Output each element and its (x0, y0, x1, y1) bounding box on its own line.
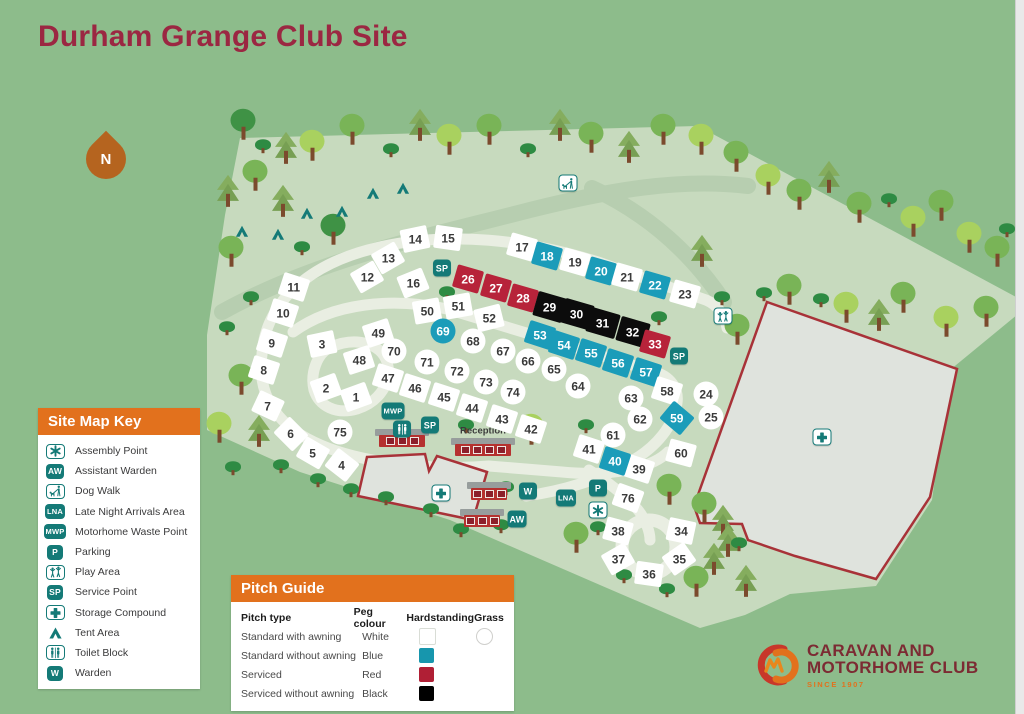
pitch-number: 29 (543, 300, 556, 314)
key-item-toilet: Toilet Block (44, 643, 194, 663)
pitch-number: 69 (436, 324, 449, 338)
pitch-number: 63 (624, 391, 637, 405)
pitch-66: 66 (516, 349, 541, 374)
building (471, 488, 507, 500)
key-item-label: Play Area (75, 566, 120, 578)
key-item-label: Toilet Block (75, 647, 128, 659)
pitch-68: 68 (461, 329, 486, 354)
hardstanding-swatch-cell (419, 686, 476, 701)
key-item-label: Service Point (75, 586, 137, 598)
storage-icon (813, 429, 832, 446)
pitch-number: 26 (461, 272, 474, 286)
pitch-number: 62 (633, 412, 646, 426)
peg-colour-label: Black (362, 688, 419, 700)
assembly-icon (46, 444, 65, 459)
pitch-number: 8 (261, 363, 268, 377)
pitch-number: 40 (608, 454, 621, 468)
pitch-number: 9 (269, 336, 276, 350)
pitch-number: 27 (489, 281, 502, 295)
pitch-number: 39 (632, 462, 645, 476)
hardstanding-swatch (419, 648, 434, 663)
pitch-69: 69 (431, 319, 456, 344)
key-icon-cell: AW (44, 464, 66, 479)
pitch-guide-column-header: Pitch type (241, 612, 354, 624)
pitch-71: 71 (415, 350, 440, 375)
key-icon-cell (44, 484, 66, 499)
tent-icon (236, 224, 249, 242)
pitch-number: 70 (387, 344, 400, 358)
key-item-label: Late Night Arrivals Area (75, 506, 185, 518)
key-item-list: Assembly PointAWAssistant WardenDog Walk… (38, 435, 200, 689)
peg-colour-label: White (362, 631, 419, 643)
key-item-lna: LNALate Night Arrivals Area (44, 502, 194, 522)
key-panel-title: Site Map Key (38, 408, 200, 435)
pitch-36: 36 (634, 561, 664, 588)
pitch-number: 34 (674, 524, 687, 538)
pitch-number: 25 (704, 410, 717, 424)
pitch-number: 52 (482, 311, 495, 325)
pitch-24: 24 (694, 382, 719, 407)
building (464, 515, 500, 527)
pitch-type-label: Serviced (241, 669, 362, 681)
key-icon-cell (44, 565, 66, 580)
pitch-75: 75 (328, 420, 353, 445)
pitch-73: 73 (474, 370, 499, 395)
key-item-storage: Storage Compound (44, 603, 194, 623)
key-item-label: Parking (75, 546, 111, 558)
pitch-number: 28 (516, 291, 529, 305)
pitch-number: 60 (674, 446, 687, 460)
assembly-icon (589, 502, 608, 519)
key-icon-cell: SP (44, 585, 66, 600)
pitch-number: 19 (568, 255, 581, 269)
pitch-number: 49 (371, 326, 384, 340)
grass-swatch (476, 628, 493, 645)
pitch-number: 36 (642, 567, 655, 581)
storage-icon (432, 485, 451, 502)
pitch-74: 74 (501, 380, 526, 405)
dogwalk-icon (46, 484, 65, 499)
sp-icon: SP (670, 348, 688, 365)
pitch-type-label: Standard with awning (241, 631, 362, 643)
pitch-guide-row: Standard with awningWhite (241, 627, 504, 646)
pitch-guide-column-header: Grass (474, 612, 504, 624)
pitch-63: 63 (619, 386, 644, 411)
pitch-number: 74 (506, 385, 519, 399)
tent-icon (336, 204, 349, 222)
pitch-number: 61 (606, 428, 619, 442)
pitch-number: 31 (596, 316, 609, 330)
pitch-type-label: Standard without awning (241, 650, 362, 662)
pitch-guide-row: Serviced without awningBlack (241, 684, 504, 703)
pitch-15: 15 (433, 225, 463, 252)
tent-icon (301, 206, 314, 224)
hardstanding-swatch (419, 628, 436, 645)
key-icon-cell: MWP (44, 524, 66, 539)
pitch-number: 48 (352, 353, 365, 367)
pitch-number: 5 (310, 446, 317, 460)
p-icon: P (589, 480, 607, 497)
peg-colour-label: Blue (362, 650, 419, 662)
key-item-p: PParking (44, 542, 194, 562)
key-item-mwp: MWPMotorhome Waste Point (44, 522, 194, 542)
building (455, 444, 511, 456)
aw-icon: AW (46, 464, 64, 479)
pitch-number: 4 (339, 458, 346, 472)
key-item-tent: Tent Area (44, 623, 194, 643)
pitch-number: 33 (648, 337, 661, 351)
tent-icon (47, 625, 64, 640)
pitch-number: 53 (533, 328, 546, 342)
page-title: Durham Grange Club Site (38, 20, 408, 54)
storage-icon (46, 605, 65, 620)
site-map-key-panel: Site Map Key Assembly PointAWAssistant W… (38, 408, 200, 689)
key-item-w: WWarden (44, 663, 194, 683)
key-item-play: Play Area (44, 562, 194, 582)
hardstanding-swatch (419, 686, 434, 701)
pitch-guide-row: Standard without awningBlue (241, 646, 504, 665)
mwp-icon: MWP (382, 403, 405, 420)
pitch-number: 67 (496, 344, 509, 358)
pitch-guide-title: Pitch Guide (231, 575, 514, 602)
club-logo-icon (751, 640, 799, 690)
pitch-number: 76 (621, 491, 634, 505)
pitch-number: 10 (276, 306, 289, 320)
pitch-65: 65 (542, 357, 567, 382)
pitch-number: 72 (450, 364, 463, 378)
pitch-guide-table: Pitch typePeg colourHardstandingGrassSta… (231, 602, 514, 711)
pitch-61: 61 (601, 423, 626, 448)
key-icon-cell (44, 625, 66, 640)
peg-colour-label: Red (362, 669, 419, 681)
mwp-icon: MWP (44, 524, 66, 539)
pitch-number: 59 (670, 411, 683, 425)
pitch-guide-header-row: Pitch typePeg colourHardstandingGrass (241, 608, 504, 627)
play-icon (46, 565, 65, 580)
hardstanding-swatch-cell (419, 667, 476, 682)
tent-icon (272, 227, 285, 245)
key-item-label: Assistant Warden (75, 465, 157, 477)
pitch-number: 32 (626, 325, 639, 339)
pitch-number: 45 (437, 390, 450, 404)
pitch-guide-panel: Pitch Guide Pitch typePeg colourHardstan… (231, 575, 514, 711)
key-icon-cell (44, 605, 66, 620)
p-icon: P (47, 545, 63, 560)
pitch-number: 21 (620, 270, 633, 284)
pitch-72: 72 (445, 359, 470, 384)
pitch-type-label: Serviced without awning (241, 688, 362, 700)
pitch-70: 70 (382, 339, 407, 364)
pitch-number: 47 (381, 371, 394, 385)
site-map-page: Durham Grange Club Site N Reception12345… (0, 0, 1024, 714)
aw-icon: AW (508, 511, 527, 528)
key-item-label: Tent Area (75, 627, 119, 639)
w-icon: W (47, 666, 63, 681)
key-item-label: Warden (75, 667, 111, 679)
pitch-number: 11 (288, 280, 301, 294)
pitch-number: 41 (582, 442, 595, 456)
pitch-number: 13 (381, 251, 394, 265)
key-icon-cell: P (44, 545, 66, 560)
pitch-number: 71 (420, 355, 433, 369)
toilet-icon (46, 645, 65, 660)
pitch-67: 67 (491, 339, 516, 364)
pitch-number: 46 (408, 381, 421, 395)
hardstanding-swatch (419, 667, 434, 682)
sp-icon: SP (421, 417, 439, 434)
pitch-number: 15 (441, 231, 454, 245)
pitch-number: 24 (699, 387, 712, 401)
pitch-number: 12 (360, 270, 373, 284)
pitch-number: 16 (406, 276, 419, 290)
pitch-number: 44 (465, 401, 478, 415)
hardstanding-swatch-cell (419, 628, 476, 645)
key-item-label: Dog Walk (75, 485, 120, 497)
pitch-number: 54 (557, 338, 570, 352)
pitch-number: 64 (571, 379, 584, 393)
pitch-number: 14 (408, 232, 421, 246)
w-icon: W (519, 483, 537, 500)
key-item-label: Storage Compound (75, 607, 166, 619)
pitch-number: 22 (648, 278, 661, 292)
logo-line2: MOTORHOME CLUB (807, 659, 979, 676)
pitch-number: 68 (466, 334, 479, 348)
pitch-guide-column-header: Hardstanding (406, 612, 474, 624)
pitch-number: 73 (479, 375, 492, 389)
pitch-number: 66 (521, 354, 534, 368)
logo-tagline: SINCE 1907 (807, 680, 979, 689)
north-marker: N (86, 133, 130, 177)
key-icon-cell (44, 444, 66, 459)
pitch-number: 38 (611, 524, 624, 538)
key-item-dogwalk: Dog Walk (44, 481, 194, 501)
play-icon (714, 308, 733, 325)
pitch-number: 3 (319, 337, 326, 351)
key-item-aw: AWAssistant Warden (44, 461, 194, 481)
pitch-number: 50 (420, 304, 433, 318)
tent-icon (367, 186, 380, 204)
club-logo: CARAVAN AND MOTORHOME CLUB SINCE 1907 (751, 640, 979, 690)
pitch-number: 65 (547, 362, 560, 376)
pitch-number: 57 (639, 365, 652, 379)
logo-line1: CARAVAN AND (807, 642, 979, 659)
key-item-sp: SPService Point (44, 582, 194, 602)
hardstanding-swatch-cell (419, 648, 476, 663)
key-item-assembly: Assembly Point (44, 441, 194, 461)
dogwalk-icon (559, 175, 578, 192)
pitch-number: 55 (584, 346, 597, 360)
pitch-number: 56 (611, 356, 624, 370)
pitch-number: 6 (288, 427, 295, 441)
toilet-icon (393, 421, 411, 438)
sp-icon: SP (47, 585, 63, 600)
pitch-guide-column-header: Peg colour (354, 606, 407, 630)
grass-cell (476, 628, 504, 645)
pitch-number: 23 (678, 287, 691, 301)
pitch-number: 30 (570, 307, 583, 321)
key-item-label: Motorhome Waste Point (75, 526, 187, 538)
north-label: N (101, 151, 112, 168)
key-icon-cell (44, 645, 66, 660)
pitch-number: 51 (451, 299, 464, 313)
pitch-number: 17 (515, 240, 528, 254)
tent-icon (397, 181, 410, 199)
key-item-label: Assembly Point (75, 445, 147, 457)
sp-icon: SP (433, 260, 451, 277)
pitch-number: 75 (333, 425, 346, 439)
pitch-64: 64 (566, 374, 591, 399)
pitch-number: 1 (353, 390, 360, 404)
window-edge (1015, 0, 1024, 714)
pitch-51: 51 (443, 292, 474, 319)
key-icon-cell: LNA (44, 504, 66, 519)
pitch-number: 35 (672, 552, 685, 566)
pitch-number: 42 (524, 422, 537, 436)
pitch-number: 20 (594, 264, 607, 278)
pitch-number: 58 (660, 384, 673, 398)
pitch-25: 25 (699, 405, 724, 430)
lna-icon: LNA (556, 490, 576, 507)
pitch-number: 18 (540, 249, 553, 263)
key-icon-cell: W (44, 666, 66, 681)
lna-icon: LNA (45, 504, 65, 519)
pitch-number: 7 (265, 399, 272, 413)
pitch-number: 43 (495, 412, 508, 426)
pitch-number: 37 (611, 552, 624, 566)
pitch-number: 2 (323, 381, 330, 395)
pitch-guide-row: ServicedRed (241, 665, 504, 684)
